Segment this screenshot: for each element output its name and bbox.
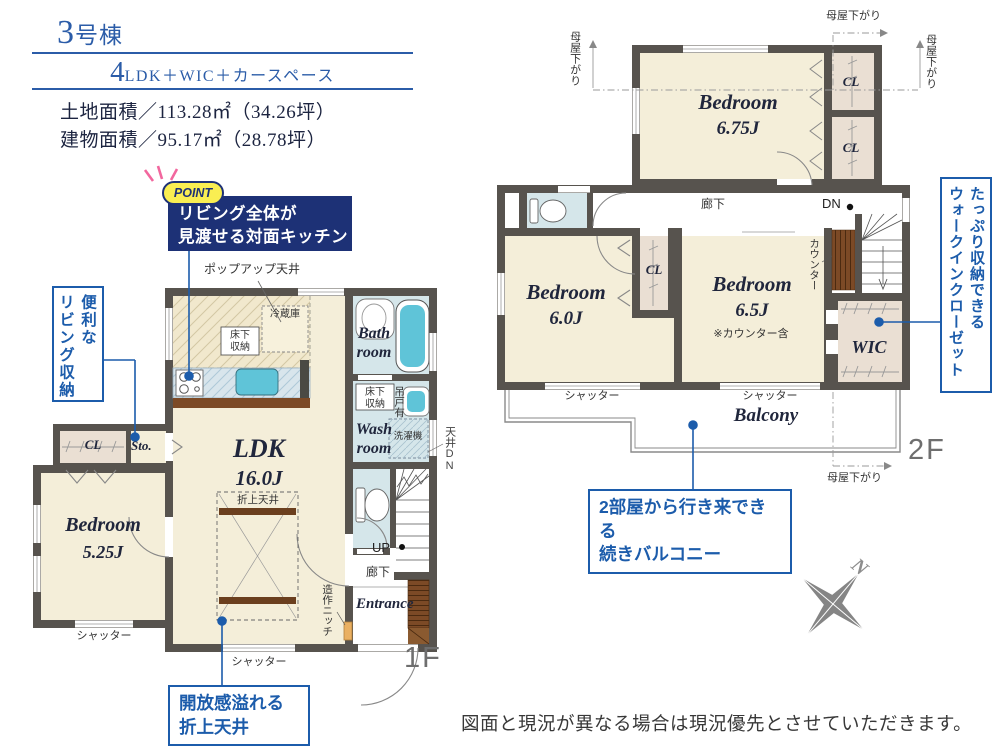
bedroom65-size-label: 6.5J — [735, 300, 768, 322]
balcony-label: Balcony — [734, 405, 798, 427]
callout-wic: たっぷり収納できる ウォークインクローゼット — [940, 177, 992, 393]
ceiling-dn-label: 天井DN — [443, 426, 456, 472]
entrance-label: Entrance — [356, 596, 414, 613]
cl-2f-c-label: CL — [646, 262, 663, 278]
header-rule-bottom — [32, 88, 413, 90]
wash-room-label1: Wash — [356, 421, 392, 439]
kitchen-sink-icon — [236, 369, 278, 395]
bedroom65-label: Bedroom — [712, 272, 791, 297]
counter-label: カウンター — [808, 238, 820, 291]
building-number: 3号棟 — [57, 14, 123, 52]
callout-wic-col1: たっぷり収納できる — [966, 186, 987, 384]
moya-left-label: 母屋下がり — [568, 31, 581, 86]
point-rays-icon — [145, 166, 177, 181]
underfloor-wash-label: 床下収納 — [363, 387, 387, 410]
moya-top-label: 母屋下がり — [826, 10, 881, 23]
shutter-1f-left-label: シャッター — [77, 630, 132, 643]
up-label: UP — [372, 541, 390, 556]
bedroom675-label: Bedroom — [698, 90, 777, 115]
callout-coffered-ceiling: 開放感溢れる 折上天井 — [168, 685, 310, 746]
cl-2f-b-label: CL — [843, 140, 860, 156]
bedroom675-size-label: 6.75J — [717, 118, 760, 140]
bath-room-label1: Bath — [358, 325, 390, 343]
floor1-tag: 1F — [404, 642, 442, 675]
counter-note-label: ※カウンター含 — [713, 328, 788, 341]
callout-living-storage-col1: 便利な — [76, 294, 98, 394]
plan-digit: 4 — [110, 56, 125, 88]
point-line2: 見渡せる対面キッチン — [178, 226, 352, 249]
callout-balcony: 2部屋から行き来できる 続きバルコニー — [588, 489, 792, 574]
callout-wic-col2: ウォークインクローゼット — [945, 186, 966, 384]
callout-balcony-line1: 2部屋から行き来できる — [599, 496, 781, 543]
wash-basin-icon — [403, 387, 429, 416]
bedroom60-label: Bedroom — [526, 280, 605, 305]
counter-icon — [832, 230, 855, 290]
point-line1: リビング全体が — [178, 203, 352, 226]
niche-label: 造作ニッチ — [321, 584, 333, 637]
bedroom1f-size-label: 5.25J — [83, 542, 124, 563]
hanging-cupboard-label: 吊戸有 — [393, 386, 405, 418]
ldk-size-label: 16.0J — [235, 466, 282, 491]
dn-label: DN — [822, 197, 841, 212]
bedroom60-size-label: 6.0J — [549, 308, 582, 330]
floor-plan-page: 3号棟 4LDK＋WIC＋カースペース 土地面積／113.28㎡（34.26坪）… — [0, 0, 1000, 750]
disclaimer: 図面と現況が異なる場合は現況優先とさせていただきます。 — [461, 710, 972, 736]
point-badge: POINT — [162, 181, 224, 205]
ldk-label: LDK — [233, 434, 285, 464]
bedroom1f-label: Bedroom — [65, 514, 141, 537]
moya-right-label: 母屋下がり — [924, 34, 937, 89]
sto-label: Sto. — [131, 438, 152, 454]
building-area: 建物面積／95.17㎡（28.78坪） — [60, 125, 326, 152]
coffered-label: 折上天井 — [235, 494, 281, 506]
land-area: 土地面積／113.28㎡（34.26坪） — [60, 97, 335, 124]
callout-living-storage-col2: リビング収納 — [54, 294, 76, 394]
moya-bottom-label: 母屋下がり — [827, 472, 882, 485]
up-dot — [399, 544, 405, 550]
cl-1f-label: CL — [85, 437, 102, 453]
plan-suffix: LDK＋WIC＋カースペース — [125, 68, 335, 85]
floor2-tag: 2F — [908, 434, 946, 467]
compass-icon — [777, 548, 890, 661]
shutter-2f-left-label: シャッター — [565, 390, 620, 403]
header-rule-top — [32, 52, 413, 54]
cl-2f-a-label: CL — [843, 74, 860, 90]
shutter-2f-right-label: シャッター — [743, 390, 798, 403]
plan-type: 4LDK＋WIC＋カースペース — [32, 56, 413, 89]
dn-dot — [847, 204, 853, 210]
wash-room-label2: room — [357, 440, 392, 458]
underfloor-kitchen-label: 床下収納 — [228, 330, 252, 353]
callout-ceiling-line2: 折上天井 — [179, 716, 299, 740]
popup-ceiling-label: ポップアップ天井 — [204, 263, 300, 277]
toilet-icon-2f — [530, 199, 566, 223]
counter-edge — [173, 398, 310, 408]
callout-balcony-line2: 続きバルコニー — [599, 543, 781, 567]
callout-ceiling-line1: 開放感溢れる — [179, 692, 299, 716]
shutter-1f-center-label: シャッター — [232, 656, 287, 669]
bath-room-label2: room — [357, 344, 392, 362]
callout-living-storage: 便利な リビング収納 — [52, 286, 104, 402]
toilet-icon-1f — [356, 488, 389, 522]
refrigerator-label: 冷蔵庫 — [270, 309, 300, 321]
corridor-1f-label: 廊下 — [366, 566, 390, 580]
washer-label: 洗濯機 — [394, 432, 423, 443]
wic-label: WIC — [851, 337, 886, 358]
bathtub-icon — [396, 300, 429, 372]
corridor-2f-label: 廊下 — [701, 198, 725, 212]
